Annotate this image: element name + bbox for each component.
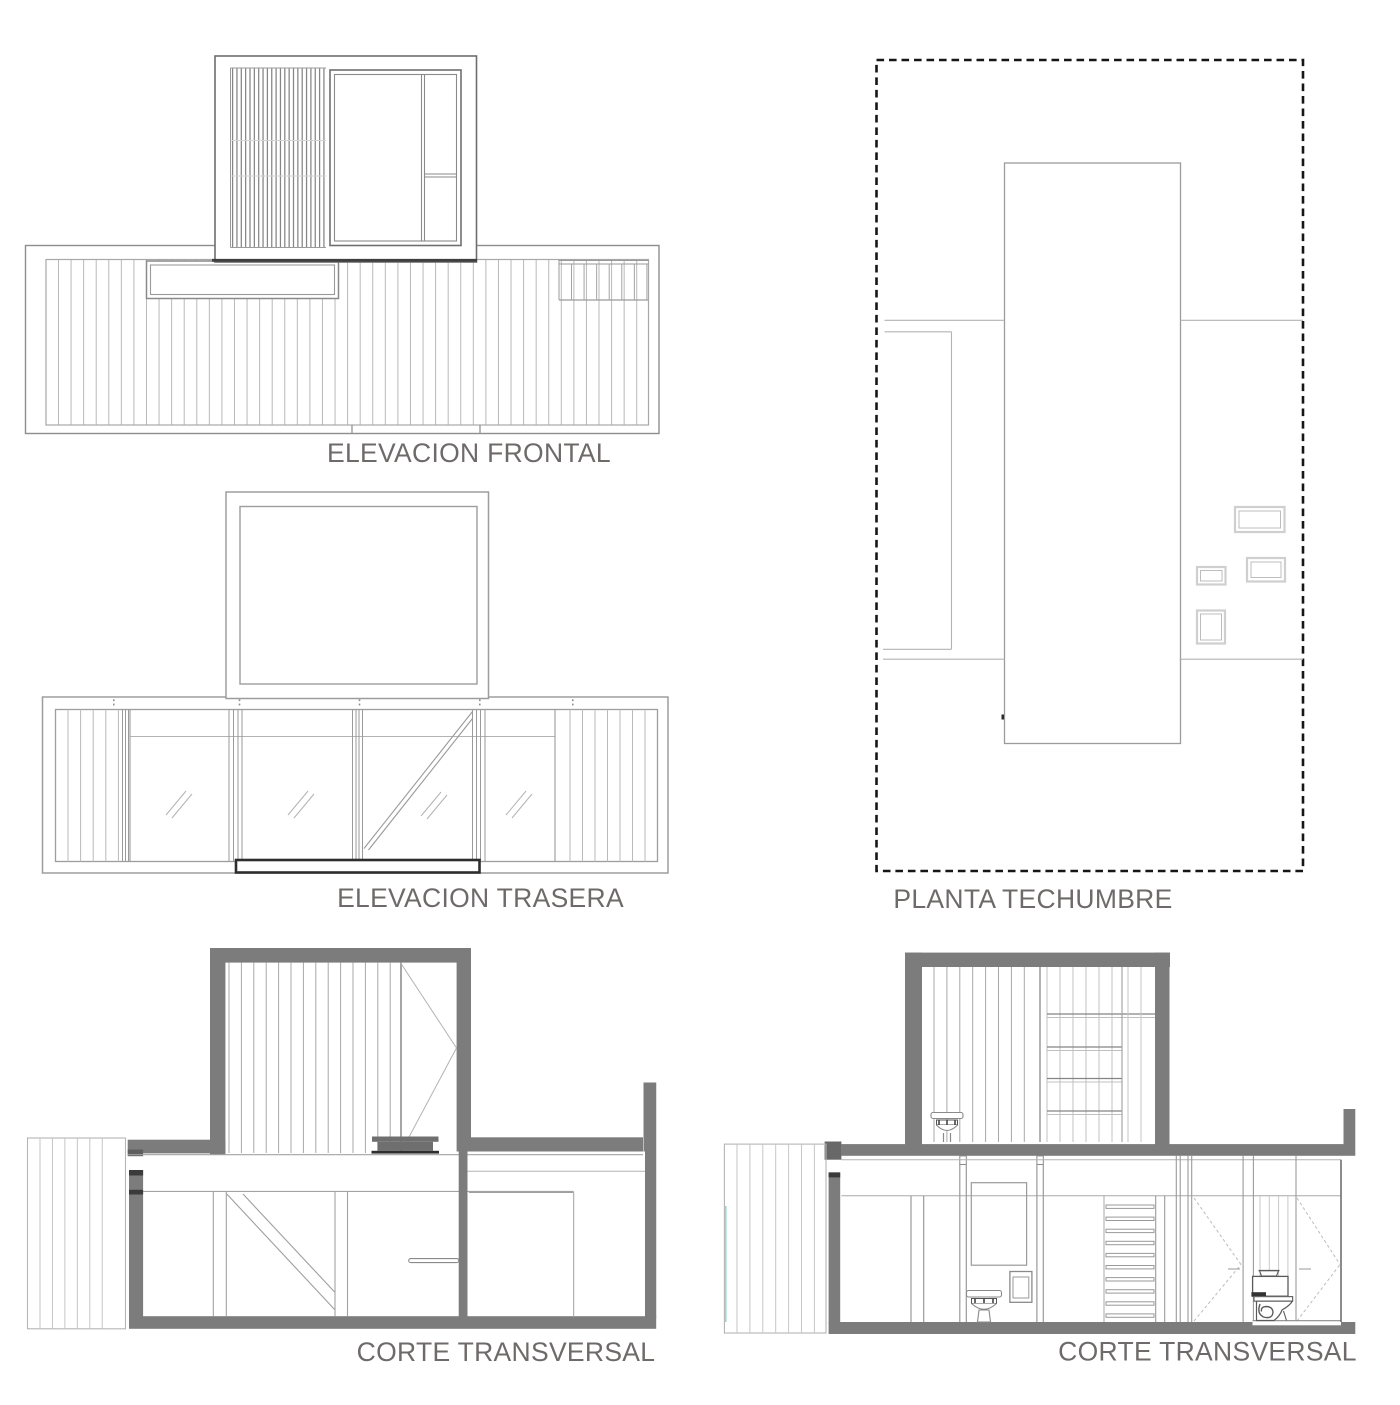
svg-text:ELEVACION FRONTAL: ELEVACION FRONTAL [327, 438, 611, 468]
svg-text:CORTE TRANSVERSAL: CORTE TRANSVERSAL [357, 1337, 656, 1367]
svg-text:PLANTA TECHUMBRE: PLANTA TECHUMBRE [893, 884, 1172, 914]
svg-text:ELEVACION TRASERA: ELEVACION TRASERA [337, 883, 624, 913]
svg-text:CORTE TRANSVERSAL: CORTE TRANSVERSAL [1058, 1337, 1357, 1367]
